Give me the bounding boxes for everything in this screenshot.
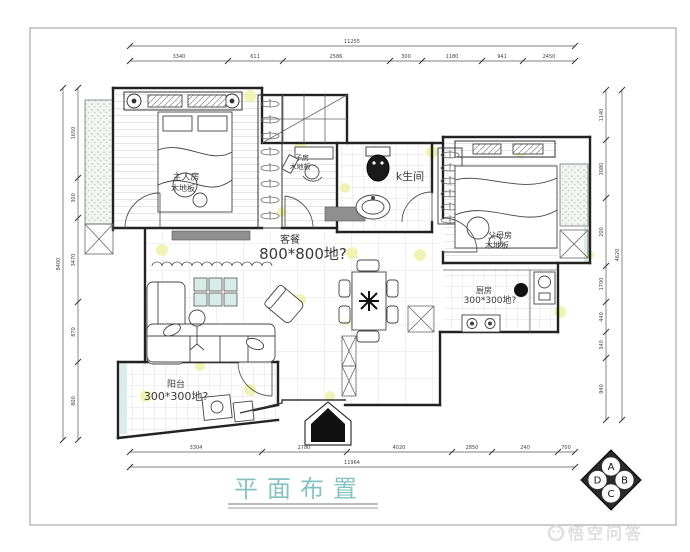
master-floor-label: 木地板: [171, 183, 195, 193]
dim: 2850: [466, 445, 479, 451]
dim: 700: [561, 445, 571, 451]
dim: 300: [401, 54, 411, 60]
entry-arrow-icon: [311, 408, 345, 442]
elevation-letter-c: C: [608, 489, 615, 500]
bath-sink-icon: [356, 195, 390, 219]
dim-bottom-overall: 11964: [344, 460, 360, 466]
balcony-floor-label: 300*300地?: [144, 390, 208, 403]
dim: 340: [599, 340, 605, 350]
kitchen-sink-icon: [534, 272, 555, 304]
floor-plan-drawing: 主人房 木地板 子房 木地板 k生间 父母房 木地板 厨房 300*300地? …: [0, 0, 690, 552]
dim: 800: [71, 396, 77, 406]
study-floor-label: 木地板: [290, 162, 311, 171]
living-floor-label: 800*800地?: [259, 245, 347, 263]
closet-hangers: [261, 99, 279, 219]
dim: 2450: [543, 54, 556, 60]
dim: 940: [599, 384, 605, 394]
parents-floor-label: 木地板: [485, 240, 509, 250]
tv-cabinet: [172, 231, 250, 240]
top-grid-block: [262, 95, 347, 143]
elevation-marker: A B C D: [581, 450, 641, 510]
dim: 941: [497, 54, 507, 60]
elevation-letter-a: A: [608, 462, 615, 473]
dim-top-overall: 11255: [344, 39, 360, 45]
balcony-room-label: 阳台: [167, 378, 185, 390]
dim-left-overall: 8400: [56, 258, 62, 271]
dim: 870: [71, 327, 77, 337]
toilet-icon: [366, 147, 390, 181]
floor-plan-page: 主人房 木地板 子房 木地板 k生间 父母房 木地板 厨房 300*300地? …: [0, 0, 690, 552]
dim-right-overall: 4620: [615, 249, 621, 262]
dim: 1180: [446, 54, 459, 60]
master-bed-icon: [158, 112, 232, 212]
left-bay-window: [85, 100, 113, 224]
dim: 3340: [173, 54, 186, 60]
study-room-label: 子房: [295, 153, 309, 162]
watermark-text: 悟空问答: [568, 524, 644, 543]
drawing-title-block: 平面布置: [228, 475, 378, 508]
stove-icon: [462, 315, 500, 332]
kitchen-room-label: 厨房: [476, 285, 492, 295]
parents-room-label: 父母房: [488, 230, 512, 240]
dim: 3470: [71, 254, 77, 267]
bathroom-label: k生间: [396, 169, 424, 183]
dim: 200: [599, 227, 605, 237]
dim: 3080: [599, 163, 605, 176]
dim: 440: [599, 312, 605, 322]
dim: 3304: [190, 445, 203, 451]
dim: 2780: [298, 445, 311, 451]
elevation-letter-d: D: [594, 476, 602, 487]
master-room-label: 主人房: [172, 171, 199, 183]
column-box: [85, 224, 113, 254]
dim: 4020: [393, 445, 406, 451]
right-bay-window: [560, 164, 588, 226]
dim: 611: [250, 54, 260, 60]
dim: 1650: [71, 127, 77, 140]
dim: 240: [520, 445, 530, 451]
drawing-title: 平面布置: [234, 475, 366, 503]
watermark: 悟空问答: [549, 524, 644, 543]
dim: 2586: [330, 54, 343, 60]
pot-icon: [514, 283, 528, 297]
column-box: [560, 230, 588, 258]
dim: 300: [71, 193, 77, 203]
elevation-letter-b: B: [621, 476, 628, 487]
dim: 1140: [599, 109, 605, 122]
kitchen-floor-label: 300*300地?: [464, 294, 517, 306]
watermark-logo-icon: [549, 526, 563, 540]
dim: 1700: [599, 278, 605, 291]
table-star-icon: [359, 291, 379, 311]
